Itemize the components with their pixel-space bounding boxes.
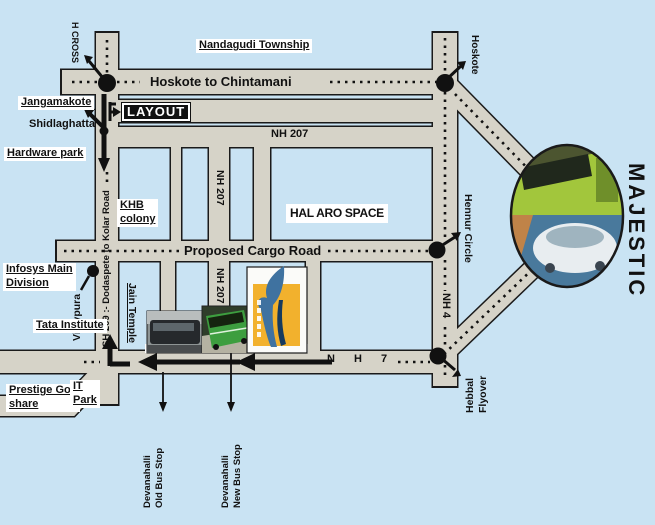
road-network [0,0,655,525]
devanahalli-old-bus-stop-label: Devanahalli Old Bus Stop [142,448,166,508]
nh7-road-label: N H 7 [327,353,395,367]
hardware-park-label: Hardware park [4,147,86,161]
vijaypura-label: Vijaypura [71,294,84,341]
tata-institute-label: Tata Institute [33,319,107,333]
nandagudi-township-label: Nandagudi Township [196,39,312,53]
hebbal-flyover-label: Hebbal Flyover [464,376,490,413]
hoskote-label: Hoskote [468,35,481,74]
nh207-vertical-upper-label: NH 207 [213,170,226,206]
infosys-label: Infosys Main Division [3,263,76,291]
proposed-cargo-road-label: Proposed Cargo Road [184,243,321,259]
old-bus-stop-photo [147,311,203,353]
majestic-photo-ellipse [510,144,626,289]
hal-aro-space-label: HAL ARO SPACE [286,204,388,223]
signboard-graphic [247,266,307,353]
majestic-label: MAJESTIC [623,163,651,298]
khb-colony-label: KHB colony [117,199,158,227]
jangamakote-label: Jangamakote [18,96,94,110]
devanahalli-new-bus-stop-label: Devanahalli New Bus Stop [220,444,244,508]
hennur-circle-label: Hennur Circle [461,194,474,263]
layout-label: LAYOUT [121,102,191,122]
nh4-label: NH 4 [438,293,452,318]
h-cross-label: H CROSS [69,22,80,63]
shidlaghatta-label: Shidlaghatta [29,118,95,132]
jain-temple-label: Jain Temple [125,283,138,343]
nh207-vertical-lower-label: NH 207 [213,268,226,304]
hoskote-chintamani-road-label: Hoskote to Chintamani [150,74,292,90]
location-map: H CROSS Nandagudi Township Hoskote to Ch… [0,0,655,525]
nh207-highway-label: NH 207 [271,128,308,142]
it-park-label: IT Park [70,380,100,408]
